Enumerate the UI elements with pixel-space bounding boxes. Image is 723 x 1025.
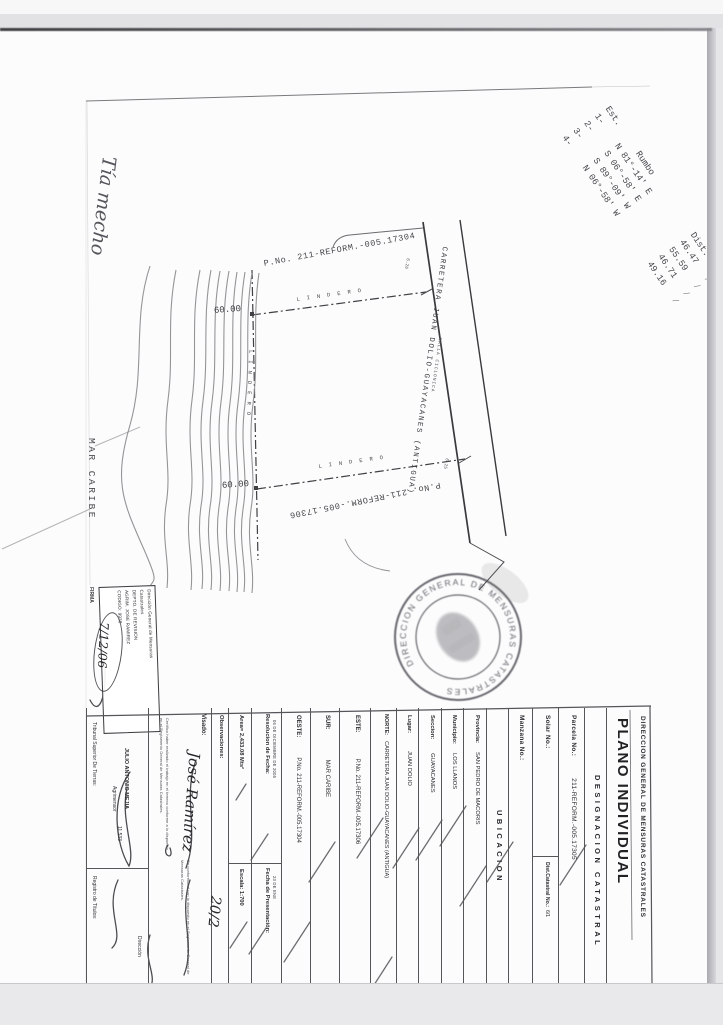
municipio-label: Municipio: xyxy=(451,715,457,744)
oeste-label: OESTE: xyxy=(295,715,301,737)
form-strip-signatures: Tribunal Superior De Tierras: JULIO ANTO… xyxy=(86,708,149,985)
seccion-value: GUAYACANES xyxy=(429,753,435,792)
resolucion-value: 06 DE DICIEMBRE DE 2005 xyxy=(272,720,277,778)
norte-label: NORTE: xyxy=(383,714,389,735)
scanned-cadastral-plan-photo: DIRECCION GENERAL DE MENSURAS CATASTRALE… xyxy=(0,0,723,1024)
form-dept: DIRECCION GENERAL DE MENSURAS CATASTRALE… xyxy=(639,716,646,918)
form-title: PLANO INDIVIDUAL xyxy=(614,718,631,885)
parcela-value: 211-REFORM.-005.17305 xyxy=(570,778,577,860)
form-strip-header: DIRECCION GENERAL DE MENSURAS CATASTRALE… xyxy=(606,708,651,985)
agrimensor-title: Agrimensor xyxy=(111,786,117,812)
photo-right-band xyxy=(716,28,723,984)
photo-top-grey-band xyxy=(0,14,723,28)
dist-catastral-value: 6/1 xyxy=(544,910,550,917)
sur-label: SUR: xyxy=(324,715,330,730)
sur-value: MAR CARIBE xyxy=(324,760,330,797)
dist-catastral-label: Dist.Catastral No.: xyxy=(544,862,550,907)
photo-bottom-band xyxy=(0,983,723,1025)
solar-label: Solar No.: xyxy=(544,715,551,749)
form-strip-solar: Solar No.: Dist.Catastral No.:6/1 xyxy=(532,708,559,985)
tribunal-label: Tribunal Superior De Tierras: xyxy=(91,722,97,786)
form-strip-este: ESTE:P.No. 211-REFORM.-005.17306 xyxy=(339,708,371,985)
direccion-label: Dirección xyxy=(136,936,142,957)
form-strip-norte: NORTE:CARRETERA JUAN DOLIO-GUAYACANES (A… xyxy=(370,708,397,985)
form-strip-resolucion: Resolucion de Fecha: 06 DE DICIEMBRE DE … xyxy=(251,708,282,985)
lugar-value: JUAN DOLIO xyxy=(406,751,412,786)
observaciones-label: Observaciones: xyxy=(218,715,224,759)
photo-top-band xyxy=(0,0,723,14)
form-strip-seccion: Seccion:GUAYACANES xyxy=(418,708,442,985)
form-strip-provincia: Provincia:SAN PEDRO DE MACORIS xyxy=(463,708,487,985)
resolucion-label: Resolucion de Fecha: xyxy=(264,714,270,774)
registro-label: Registro de Títulos: xyxy=(91,876,97,919)
lugar-label: Lugar: xyxy=(406,715,412,733)
visado-signature-date: 20/2 xyxy=(204,895,223,928)
paper-top-edge-shadow xyxy=(0,28,712,31)
municipio-value: LOS LLANOS xyxy=(451,753,457,789)
parcela-label: Parcela No.: xyxy=(570,715,577,756)
fecha-pres-label: Fecha de Presentación: xyxy=(264,868,270,933)
form-strip-area: Area= 2,433.08 Mts² Escala: 1:700 xyxy=(228,708,252,985)
este-value: P.No. 211-REFORM.-005.17306 xyxy=(354,759,360,845)
form-strip-municipio: Municipio:LOS LLANOS xyxy=(441,708,464,985)
provincia-value: SAN PEDRO DE MACORIS xyxy=(474,752,480,824)
fecha-pres-value: 23 DE ENE xyxy=(272,876,277,899)
form-strip-oeste: OESTE:P.No. 211-REFORM.-005.17304 xyxy=(281,708,311,985)
form-strip-parcela: Parcela No.:211-REFORM.-005.17305 xyxy=(558,708,585,985)
resolucion-divider xyxy=(252,863,282,864)
norte-value: CARRETERA JUAN DOLIO-GUAYACANES (ANTIGUA… xyxy=(383,741,389,878)
seccion-label: Seccion: xyxy=(429,715,435,739)
escala-label: Escala: 1:700 xyxy=(238,869,244,906)
form-strip-lugar: Lugar:JUAN DOLIO xyxy=(396,708,419,985)
certification-text-left: Certifico haber realizado el trabajo en … xyxy=(152,718,170,850)
solar-divider xyxy=(533,856,559,857)
area-label: Area= 2,433.08 Mts² xyxy=(238,715,244,769)
form-strip-designacion: DESIGNACION CATASTRAL xyxy=(584,708,607,985)
manzana-label: Manzana No.: xyxy=(518,715,525,761)
form-strip-sur: SUR:MAR CARIBE xyxy=(310,708,340,985)
ubicacion-header: UBICACION xyxy=(495,810,504,884)
paper-right-edge-shadow xyxy=(707,28,716,984)
designacion-header: DESIGNACION CATASTRAL xyxy=(593,775,602,948)
signatures-divider xyxy=(87,868,149,869)
oeste-value: P.No. 211-REFORM.-005.17304 xyxy=(295,757,301,843)
agrimensor-code: 11,533 xyxy=(116,826,122,841)
form-strip-ubicacion: UBICACION xyxy=(486,708,509,985)
agrimensor-name: JULIO ANTONIO MEJIA xyxy=(123,748,129,809)
visado-label: Visado: xyxy=(200,714,206,736)
certification-text-right: De conformidad con lo dispuesto en el Re… xyxy=(177,860,191,978)
este-label: ESTE: xyxy=(354,715,360,733)
provincia-label: Provincia: xyxy=(474,715,480,743)
area-divider xyxy=(229,863,252,864)
form-strip-observaciones: Observaciones: xyxy=(211,708,229,985)
form-strip-manzana: Manzana No.: xyxy=(508,708,533,985)
